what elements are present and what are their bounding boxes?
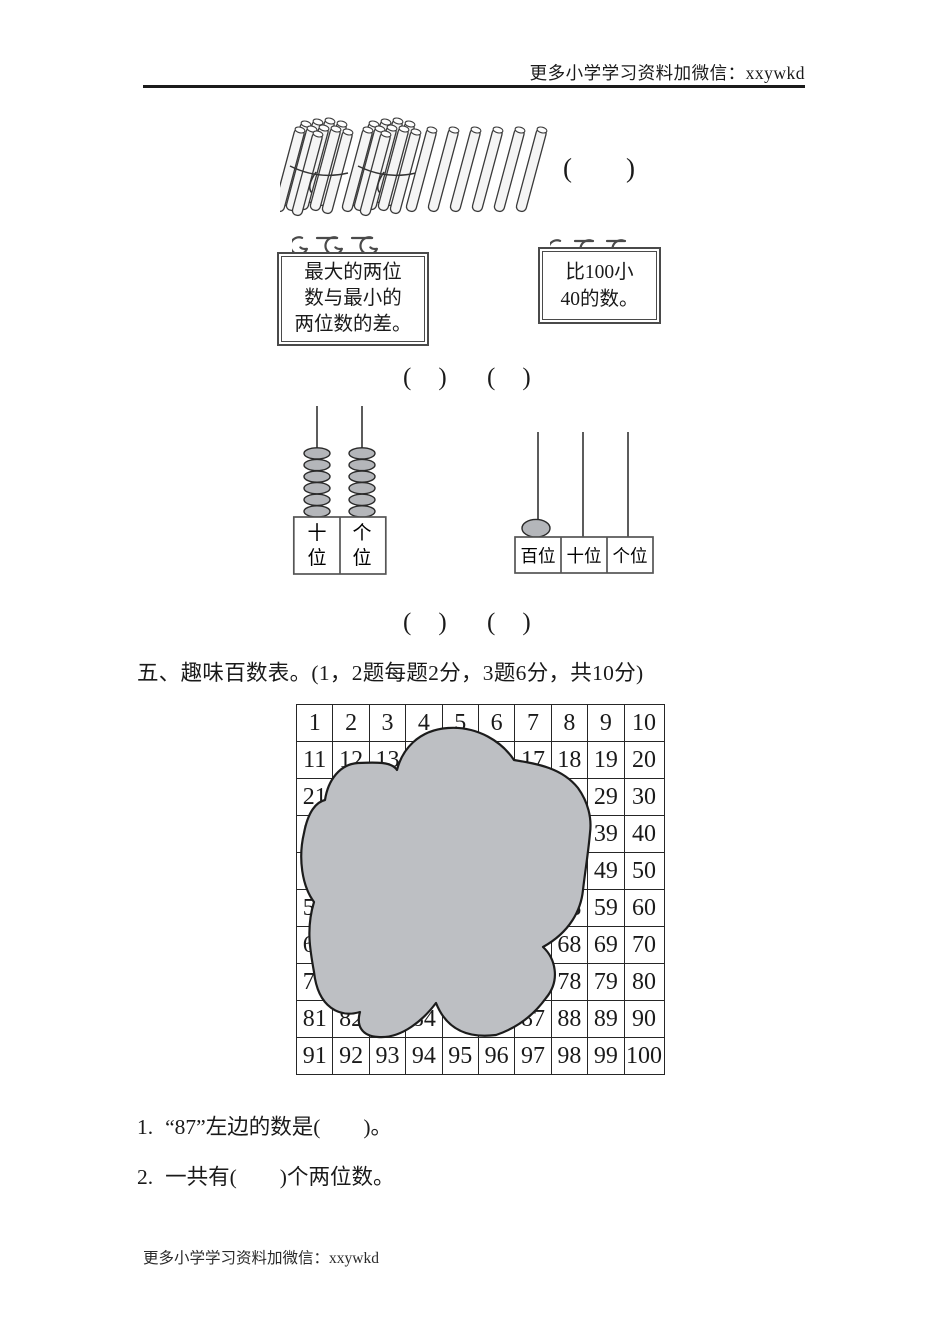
hundred-table-cell: 22	[333, 779, 369, 816]
hundred-table-cell: 19	[588, 742, 624, 779]
hundred-table-cell: 63	[369, 927, 405, 964]
hundred-table-cell: 18	[551, 742, 587, 779]
board-text-line: 比100小	[565, 259, 633, 286]
hundred-table-cell: 85	[442, 1001, 478, 1038]
question-1: 1.“87”左边的数是( )。	[137, 1110, 392, 1141]
hundred-table-cell: 65	[442, 927, 478, 964]
hundred-table-cell: 16	[478, 742, 514, 779]
hundred-table-cell: 8	[551, 705, 587, 742]
abacus-three-rods: 百位 十位 个位	[508, 423, 660, 575]
hundred-table-cell: 17	[515, 742, 551, 779]
hundred-table-cell: 27	[515, 779, 551, 816]
abacus-bead	[349, 494, 375, 505]
board-text-line: 40的数。	[560, 286, 638, 313]
abacus-bead	[304, 471, 330, 482]
hundred-table-cell: 28	[551, 779, 587, 816]
answer-blank: ( )	[487, 602, 532, 638]
hundred-number-table: 1234567891011121314151617181920212223242…	[296, 704, 665, 1075]
hundred-table-cell: 68	[551, 927, 587, 964]
header-rule	[143, 85, 805, 88]
hundred-table-cell: 89	[588, 1001, 624, 1038]
question-number: 1.	[137, 1115, 153, 1139]
hundred-table-cell: 71	[297, 964, 333, 1001]
sticks-answer-blank: ( )	[563, 146, 635, 185]
hundred-table-cell: 62	[333, 927, 369, 964]
hundred-table-cell: 77	[515, 964, 551, 1001]
hundred-table-cell: 29	[588, 779, 624, 816]
hundred-table-row: 71727374757677787980	[297, 964, 665, 1001]
hundred-table-cell: 14	[406, 742, 442, 779]
answer-blank: ( )	[403, 602, 448, 638]
hundred-table-cell: 2	[333, 705, 369, 742]
hundred-table-cell: 24	[406, 779, 442, 816]
hundred-table-cell: 36	[478, 816, 514, 853]
hundred-table-cell: 73	[369, 964, 405, 1001]
hundred-table-cell: 81	[297, 1001, 333, 1038]
hundred-table-cell: 94	[406, 1038, 442, 1075]
hundred-table-cell: 100	[624, 1038, 664, 1075]
abacus-two-rods: 十 位 个 位	[283, 398, 393, 578]
hundred-table-cell: 96	[478, 1038, 514, 1075]
board-text-line: 两位数的差。	[294, 312, 411, 338]
question-2: 2.一共有( )个两位数。	[137, 1160, 394, 1191]
answer-blank: ( )	[487, 357, 532, 393]
tens-label: 十位	[567, 546, 602, 566]
hundred-table-cell: 67	[515, 927, 551, 964]
abacus-bead	[349, 459, 375, 470]
hundred-table-cell: 1	[297, 705, 333, 742]
hundred-table-cell: 60	[624, 890, 664, 927]
hundred-table-cell: 7	[515, 705, 551, 742]
hundred-table-cell: 69	[588, 927, 624, 964]
hundred-table-cell: 38	[551, 816, 587, 853]
hundred-table-cell: 21	[297, 779, 333, 816]
loose-sticks	[405, 126, 547, 212]
hundred-table-cell: 6	[478, 705, 514, 742]
hundred-table-cell: 88	[551, 1001, 587, 1038]
hundred-table-cell: 45	[442, 853, 478, 890]
hundred-table-cell: 99	[588, 1038, 624, 1075]
hundred-table-cell: 47	[515, 853, 551, 890]
hundred-table-cell: 79	[588, 964, 624, 1001]
hundred-table-cell: 84	[406, 1001, 442, 1038]
ones-label-top: 个	[352, 522, 371, 544]
hundred-table-cell: 90	[624, 1001, 664, 1038]
hundred-table-cell: 56	[478, 890, 514, 927]
abacus-bead	[522, 519, 550, 537]
hundred-table-cell: 41	[297, 853, 333, 890]
bead-stack-tens	[304, 448, 330, 517]
sign-board-max-min-diff: 最大的两位 数与最小的 两位数的差。	[277, 252, 429, 346]
abacus-bead	[304, 506, 330, 517]
hundred-table-cell: 57	[515, 890, 551, 927]
bead-stack-hundreds	[522, 519, 550, 537]
hundred-table-cell: 91	[297, 1038, 333, 1075]
hundred-table-cell: 97	[515, 1038, 551, 1075]
hundred-table-cell: 66	[478, 927, 514, 964]
hundred-table-cell: 43	[369, 853, 405, 890]
hundred-table-cell: 61	[297, 927, 333, 964]
hundred-table-cell: 52	[333, 890, 369, 927]
abacus-bead	[349, 471, 375, 482]
hundred-table-row: 41424344454647484950	[297, 853, 665, 890]
hundred-table-cell: 11	[297, 742, 333, 779]
hundred-table-cell: 53	[369, 890, 405, 927]
hundred-table-cell: 30	[624, 779, 664, 816]
hundred-table-cell: 72	[333, 964, 369, 1001]
hundred-table-cell: 25	[442, 779, 478, 816]
ones-label: 个位	[613, 546, 648, 566]
question-number: 2.	[137, 1165, 153, 1189]
hundred-table-cell: 80	[624, 964, 664, 1001]
hundreds-label: 百位	[521, 546, 556, 566]
hundred-table-cell: 5	[442, 705, 478, 742]
ones-label-bottom: 位	[352, 547, 371, 569]
hundred-table-cell: 3	[369, 705, 405, 742]
hundred-table-cell: 51	[297, 890, 333, 927]
bead-stack-ones	[349, 448, 375, 517]
hundred-table-cell: 78	[551, 964, 587, 1001]
abacus-bead	[304, 494, 330, 505]
hundred-table-cell: 46	[478, 853, 514, 890]
hundred-table-cell: 35	[442, 816, 478, 853]
hundred-table-cell: 59	[588, 890, 624, 927]
hundred-table-cell: 40	[624, 816, 664, 853]
hundred-table-cell: 44	[406, 853, 442, 890]
hundred-table-cell: 87	[515, 1001, 551, 1038]
hundred-table-cell: 39	[588, 816, 624, 853]
hundred-table-row: 12345678910	[297, 705, 665, 742]
hundred-table-cell: 15	[442, 742, 478, 779]
hundred-table-cell: 93	[369, 1038, 405, 1075]
abacus-bead	[349, 483, 375, 494]
abacus-bead	[304, 448, 330, 459]
hundred-table-cell: 12	[333, 742, 369, 779]
board-text-line: 最大的两位	[304, 260, 402, 286]
tens-label-bottom: 位	[307, 547, 326, 569]
hundred-table-cell: 74	[406, 964, 442, 1001]
answer-blank: ( )	[403, 357, 448, 393]
hundred-table-cell: 54	[406, 890, 442, 927]
hundred-table-row: 11121314151617181920	[297, 742, 665, 779]
hundred-table-cell: 20	[624, 742, 664, 779]
hundred-table-cell: 10	[624, 705, 664, 742]
hundred-table-cell: 4	[406, 705, 442, 742]
hundred-table-row: 31323334353637383940	[297, 816, 665, 853]
abacus-bead	[304, 483, 330, 494]
hundred-table-cell: 31	[297, 816, 333, 853]
hundred-table-cell: 26	[478, 779, 514, 816]
hundred-table-row: 21222324252627282930	[297, 779, 665, 816]
abacus-bead	[349, 448, 375, 459]
hundred-table-cell: 9	[588, 705, 624, 742]
hundred-table-cell: 82	[333, 1001, 369, 1038]
hundred-table-cell: 50	[624, 853, 664, 890]
hundred-table-cell: 98	[551, 1038, 587, 1075]
hundred-table-row: 61626364656667686970	[297, 927, 665, 964]
hundred-table-cell: 55	[442, 890, 478, 927]
hundred-table-row: 919293949596979899100	[297, 1038, 665, 1075]
hundred-table-cell: 48	[551, 853, 587, 890]
hundred-table-cell: 75	[442, 964, 478, 1001]
sign-board-100-minus-40: 比100小 40的数。	[538, 247, 661, 324]
board-text-line: 数与最小的	[304, 286, 402, 312]
tens-label-top: 十	[307, 522, 326, 544]
hundred-table-cell: 86	[478, 1001, 514, 1038]
hundred-table-cell: 42	[333, 853, 369, 890]
header-promo-text: 更多小学学习资料加微信：xxywkd	[530, 60, 805, 85]
question-text: 一共有( )个两位数。	[165, 1165, 394, 1189]
section-five-title: 五、趣味百数表。(1，2题每题2分，3题6分，共10分)	[137, 656, 643, 687]
hundred-table-cell: 83	[369, 1001, 405, 1038]
hundred-table-cell: 13	[369, 742, 405, 779]
question-text: “87”左边的数是( )。	[165, 1115, 392, 1139]
hundred-table-cell: 23	[369, 779, 405, 816]
hundred-table-cell: 34	[406, 816, 442, 853]
hundred-table-row: 51525354555657585960	[297, 890, 665, 927]
footer-promo-text: 更多小学学习资料加微信：xxywkd	[143, 1246, 379, 1268]
hundred-table-cell: 64	[406, 927, 442, 964]
stick-bundle	[280, 117, 354, 216]
hundred-table-cell: 95	[442, 1038, 478, 1075]
hundred-table-cell: 92	[333, 1038, 369, 1075]
hundred-table-cell: 49	[588, 853, 624, 890]
abacus-bead	[349, 506, 375, 517]
hundred-table-cell: 37	[515, 816, 551, 853]
hundred-table-cell: 33	[369, 816, 405, 853]
hundred-table-cell: 76	[478, 964, 514, 1001]
hundred-table-cell: 70	[624, 927, 664, 964]
hundred-table-row: 81828384858687888990	[297, 1001, 665, 1038]
hundred-table-cell: 32	[333, 816, 369, 853]
abacus-bead	[304, 459, 330, 470]
hundred-table-cell: 58	[551, 890, 587, 927]
